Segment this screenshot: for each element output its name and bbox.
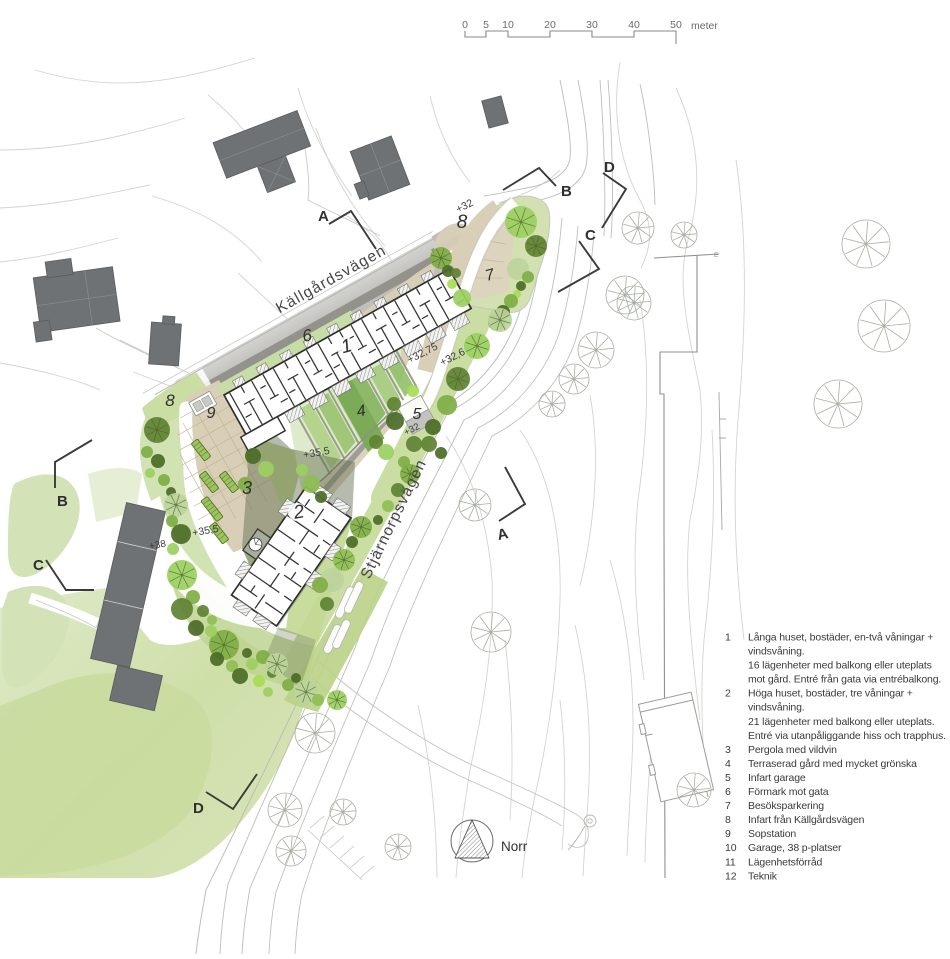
svg-text:10: 10 (725, 842, 737, 854)
svg-text:mot gård. Entré från gata via: mot gård. Entré från gata via entrébalko… (748, 674, 941, 686)
svg-text:Pergola med vildvin: Pergola med vildvin (748, 744, 837, 756)
svg-text:D: D (604, 159, 615, 176)
svg-text:Terraserad gård med mycket grö: Terraserad gård med mycket grönska (748, 758, 917, 770)
svg-text:40: 40 (628, 19, 640, 31)
svg-text:Infart från Källgårdsvägen: Infart från Källgårdsvägen (748, 814, 865, 826)
svg-text:vindsvåning.: vindsvåning. (748, 702, 805, 714)
svg-text:Lägenhetsförråd: Lägenhetsförråd (748, 856, 823, 868)
svg-text:C: C (33, 557, 44, 574)
svg-text:5: 5 (413, 406, 422, 423)
svg-text:2: 2 (725, 688, 731, 700)
svg-text:9: 9 (207, 405, 216, 422)
svg-text:9: 9 (725, 828, 731, 840)
svg-text:Sopstation: Sopstation (748, 828, 796, 840)
svg-text:6: 6 (725, 786, 731, 798)
svg-text:3: 3 (242, 478, 252, 498)
svg-text:10: 10 (502, 19, 514, 31)
svg-text:5: 5 (725, 772, 731, 784)
svg-text:C: C (585, 227, 596, 244)
svg-text:A: A (318, 208, 329, 225)
svg-text:D: D (193, 800, 204, 817)
svg-text:Infart garage: Infart garage (748, 772, 806, 784)
svg-text:Långa huset, bostäder, en-två: Långa huset, bostäder, en-två våningar + (748, 632, 933, 644)
svg-text:11: 11 (725, 856, 736, 868)
svg-text:5: 5 (483, 19, 489, 31)
svg-text:16 lägenheter med balkong elle: 16 lägenheter med balkong eller uteplats (748, 660, 932, 672)
svg-text:30: 30 (586, 19, 598, 31)
svg-text:Garage, 38 p-platser: Garage, 38 p-platser (748, 842, 842, 854)
svg-text:20: 20 (544, 19, 556, 31)
svg-text:meter: meter (691, 20, 718, 32)
svg-text:Förmark mot gata: Förmark mot gata (748, 786, 829, 798)
svg-text:Höga huset, bostäder, tre våni: Höga huset, bostäder, tre våningar + (748, 688, 913, 700)
svg-text:Besöksparkering: Besöksparkering (748, 800, 824, 812)
svg-text:8: 8 (725, 814, 731, 826)
svg-text:12: 12 (725, 870, 737, 882)
svg-text:Entré via utanpåliggande hiss: Entré via utanpåliggande hiss och trapph… (748, 730, 946, 742)
svg-text:vindsvåning.: vindsvåning. (748, 646, 805, 658)
svg-text:E: E (714, 252, 719, 259)
svg-text:21 lägenheter med balkong elle: 21 lägenheter med balkong eller uteplats… (748, 716, 934, 728)
svg-text:50: 50 (670, 19, 682, 31)
svg-text:8: 8 (165, 391, 175, 410)
svg-text:3: 3 (725, 744, 731, 756)
svg-text:7: 7 (725, 800, 731, 812)
svg-text:Norr: Norr (501, 839, 528, 854)
svg-text:0: 0 (462, 19, 468, 31)
svg-text:4: 4 (725, 758, 731, 770)
svg-text:1: 1 (725, 632, 731, 644)
svg-text:B: B (561, 183, 572, 200)
svg-text:B: B (57, 493, 68, 510)
svg-text:Teknik: Teknik (748, 870, 778, 882)
